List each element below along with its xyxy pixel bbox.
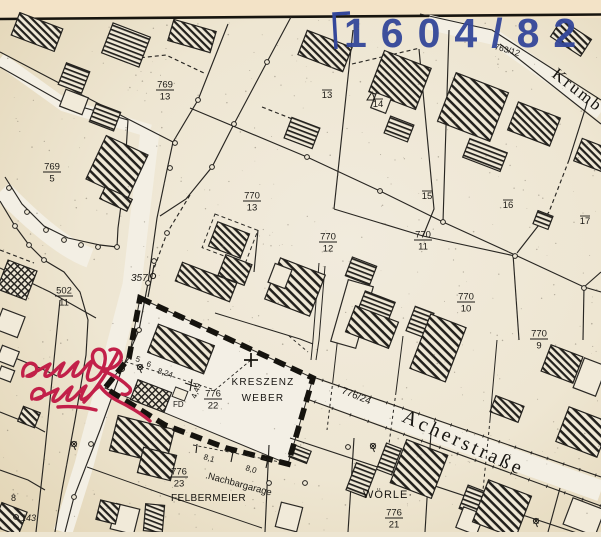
svg-text:9: 9 [536,341,541,352]
svg-text:22: 22 [208,401,219,412]
svg-text:WÖRLE·: WÖRLE· [363,489,413,501]
svg-text:5: 5 [49,174,54,185]
svg-text:770: 770 [458,292,474,303]
svg-text:KRESZENZ: KRESZENZ [232,377,295,388]
svg-text:16: 16 [503,200,514,211]
svg-text:769: 769 [44,162,60,173]
svg-text:770: 770 [415,230,431,241]
svg-text:143: 143 [21,513,36,523]
svg-text:15: 15 [422,191,433,202]
svg-text:770: 770 [244,191,260,202]
svg-text:10: 10 [461,304,472,315]
svg-text:17: 17 [580,216,591,227]
svg-text:770: 770 [320,232,336,243]
svg-text:WEBER: WEBER [242,393,285,404]
svg-text:1604/82: 1604/82 [344,10,590,56]
svg-text:776: 776 [386,508,402,519]
svg-text:776: 776 [171,467,187,478]
svg-text:23: 23 [174,479,185,490]
svg-text:502: 502 [56,286,72,297]
svg-text:13: 13 [160,92,171,103]
svg-text:11: 11 [418,242,428,253]
svg-text:357: 357 [131,273,148,284]
svg-text:13: 13 [322,90,333,101]
svg-text:769: 769 [157,80,173,91]
svg-text:770: 770 [531,329,547,340]
svg-text:11: 11 [59,298,69,309]
svg-text:14: 14 [373,99,384,110]
svg-text:21: 21 [389,520,400,531]
svg-text:12: 12 [323,244,334,255]
svg-text:FELBERMEIER: FELBERMEIER [171,493,246,504]
svg-text:13: 13 [247,203,258,214]
